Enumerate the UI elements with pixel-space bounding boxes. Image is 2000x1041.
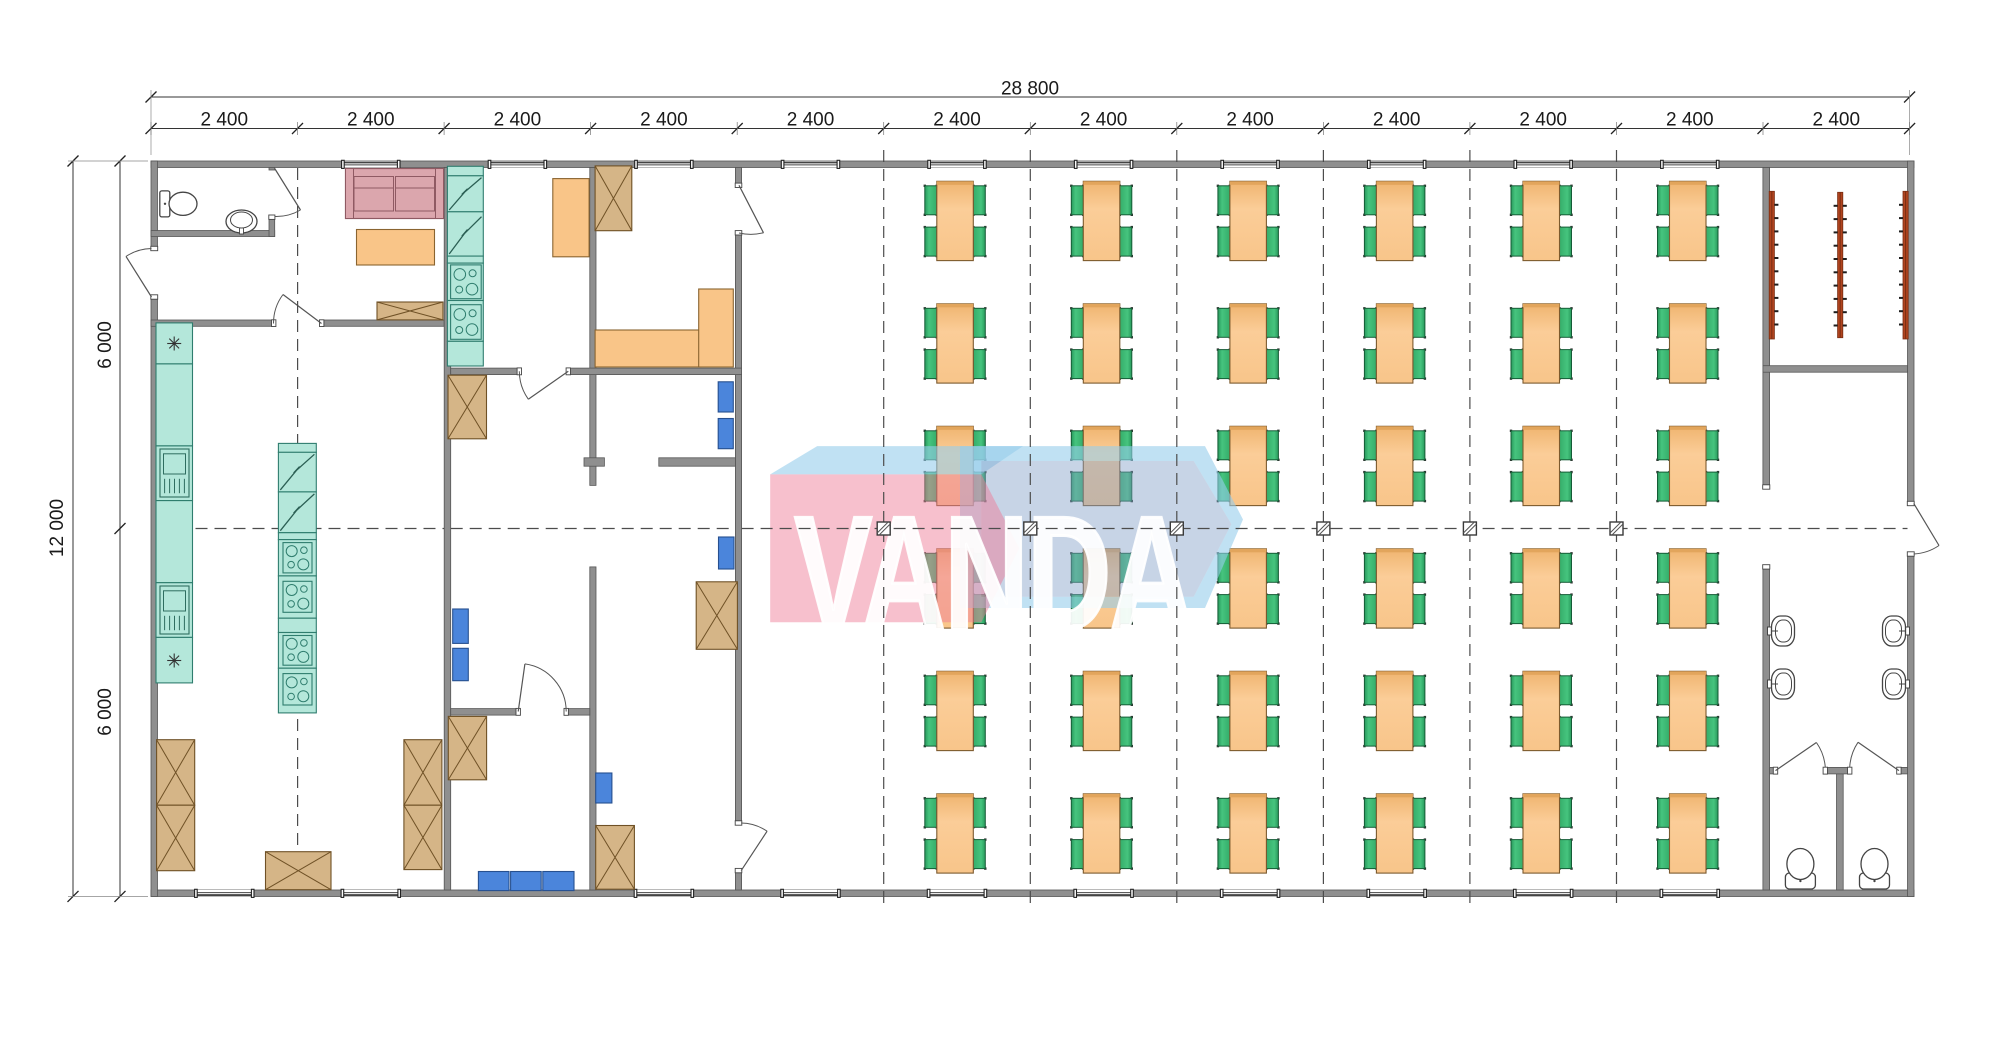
svg-text:2 400: 2 400 bbox=[933, 110, 981, 131]
svg-text:12 000: 12 000 bbox=[47, 499, 68, 557]
svg-text:2 400: 2 400 bbox=[1373, 110, 1421, 131]
svg-text:2 400: 2 400 bbox=[1666, 110, 1714, 131]
svg-text:6 000: 6 000 bbox=[95, 688, 116, 736]
svg-text:2 400: 2 400 bbox=[201, 110, 249, 131]
svg-text:28 800: 28 800 bbox=[1001, 79, 1059, 100]
svg-text:6 000: 6 000 bbox=[95, 321, 116, 369]
svg-text:2 400: 2 400 bbox=[787, 110, 835, 131]
svg-text:2 400: 2 400 bbox=[347, 110, 395, 131]
svg-text:2 400: 2 400 bbox=[1813, 110, 1861, 131]
svg-text:2 400: 2 400 bbox=[1080, 110, 1128, 131]
svg-text:VANDA: VANDA bbox=[794, 483, 1192, 665]
svg-text:2 400: 2 400 bbox=[640, 110, 688, 131]
svg-text:2 400: 2 400 bbox=[494, 110, 542, 131]
svg-text:2 400: 2 400 bbox=[1519, 110, 1567, 131]
svg-text:2 400: 2 400 bbox=[1226, 110, 1274, 131]
